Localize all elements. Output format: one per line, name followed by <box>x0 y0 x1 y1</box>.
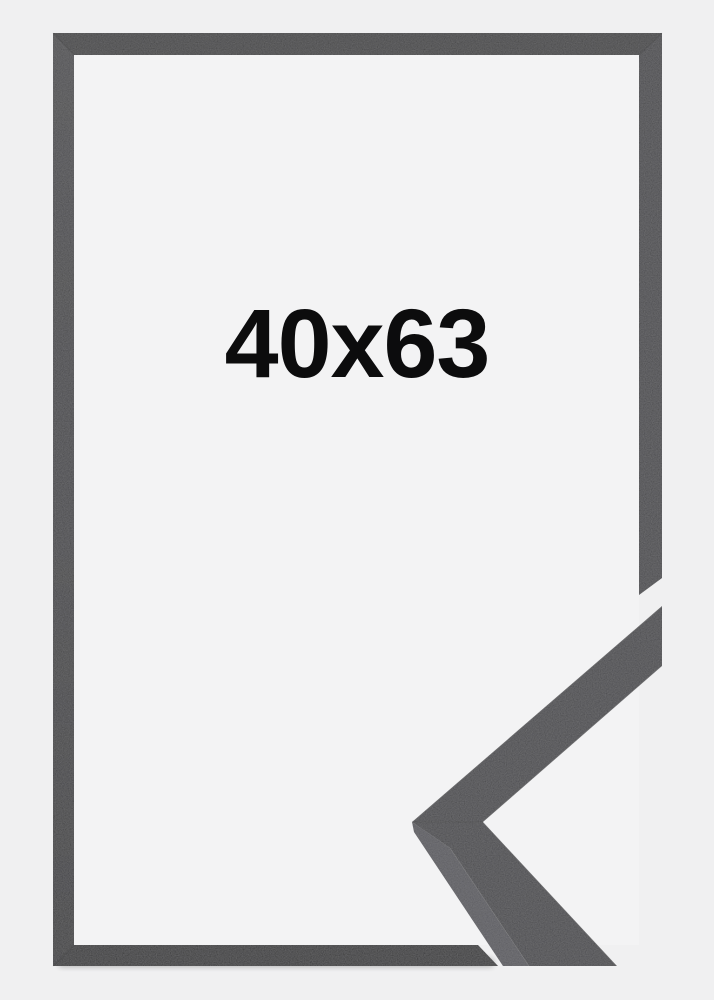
frame-graphic <box>0 0 714 1000</box>
frame-border-bottom <box>53 945 498 966</box>
product-image: 40x63 <box>0 0 714 1000</box>
frame-border-left-shading <box>53 33 74 966</box>
frame-opening <box>74 55 639 945</box>
frame-border-top <box>53 33 662 55</box>
size-label: 40x63 <box>0 295 714 392</box>
